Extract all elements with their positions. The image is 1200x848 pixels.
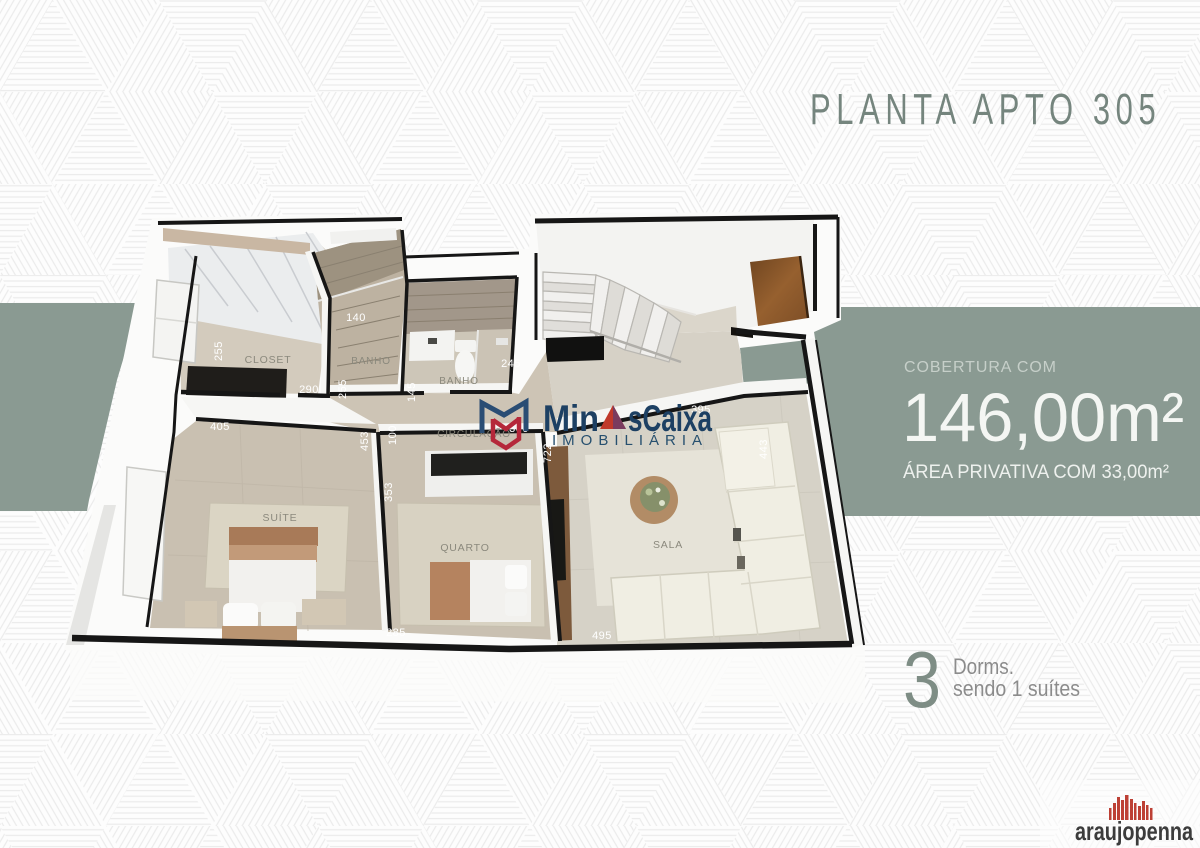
svg-text:140: 140 — [346, 312, 366, 324]
svg-text:285: 285 — [386, 627, 406, 639]
svg-text:145: 145 — [406, 382, 418, 402]
svg-text:353: 353 — [383, 482, 395, 502]
svg-text:443: 443 — [758, 439, 770, 459]
svg-text:QUARTO: QUARTO — [440, 542, 489, 554]
svg-text:290: 290 — [299, 384, 319, 396]
svg-text:100: 100 — [387, 425, 399, 445]
svg-text:255: 255 — [213, 341, 225, 361]
svg-text:sendo 1 suítes: sendo 1 suítes — [953, 676, 1080, 701]
svg-text:CIRCULAÇÃO: CIRCULAÇÃO — [437, 427, 511, 440]
svg-text:495: 495 — [592, 630, 612, 642]
svg-text:453: 453 — [359, 431, 371, 451]
svg-text:BANHO: BANHO — [439, 376, 479, 387]
svg-text:PLANTA APTO 305: PLANTA APTO 305 — [810, 86, 1161, 135]
svg-text:255: 255 — [337, 379, 349, 399]
svg-text:araujopenna: araujopenna — [1075, 816, 1193, 846]
svg-text:405: 405 — [210, 421, 230, 433]
svg-text:SALA: SALA — [653, 539, 683, 551]
svg-text:BANHO: BANHO — [351, 356, 391, 367]
svg-text:ÁREA PRIVATIVA COM 33,00m²: ÁREA PRIVATIVA COM 33,00m² — [903, 460, 1169, 483]
svg-text:COBERTURA COM: COBERTURA COM — [904, 359, 1056, 376]
svg-text:SUÍTE: SUÍTE — [263, 511, 298, 524]
svg-text:CLOSET: CLOSET — [245, 354, 292, 366]
svg-text:245: 245 — [501, 358, 521, 370]
svg-text:146,00m²: 146,00m² — [902, 379, 1184, 456]
svg-text:IMOBILIÁRIA: IMOBILIÁRIA — [552, 432, 708, 449]
svg-text:3: 3 — [903, 635, 941, 724]
